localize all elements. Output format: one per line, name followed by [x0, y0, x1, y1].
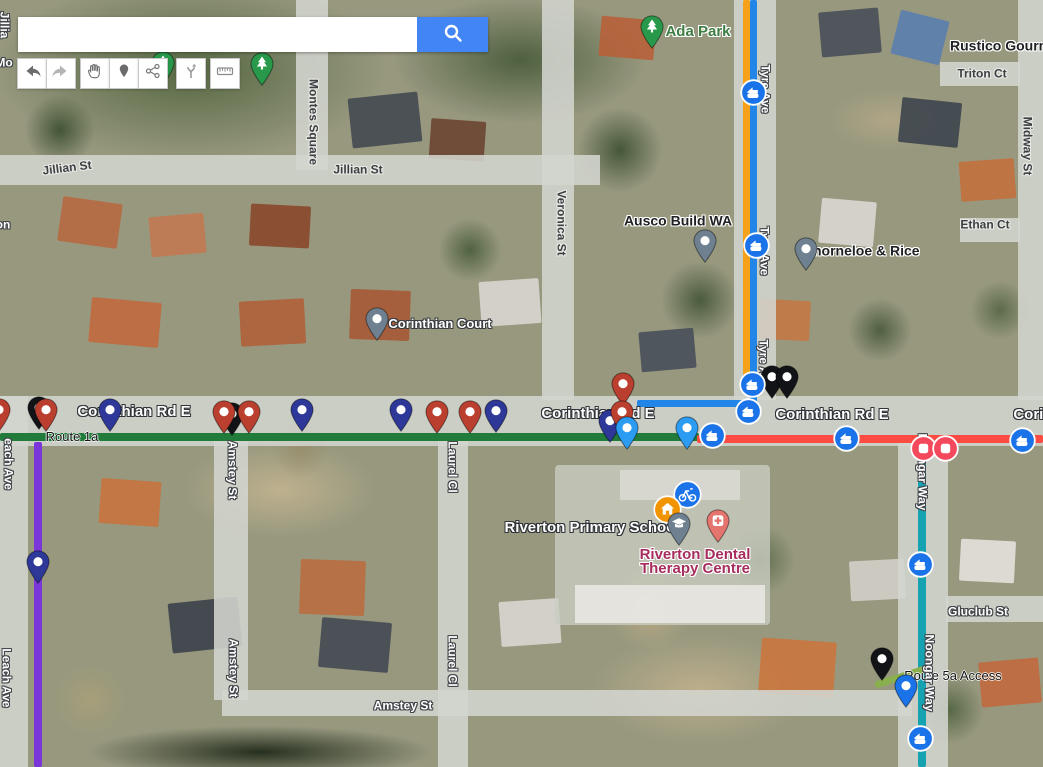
- stop-pin-navy[interactable]: [483, 399, 509, 433]
- directions-fork-button[interactable]: [176, 58, 206, 89]
- stop-pin-navy[interactable]: [25, 550, 51, 584]
- station-stop-icon[interactable]: [932, 435, 959, 462]
- search-bar: [18, 17, 488, 52]
- bus-stop-icon[interactable]: [739, 371, 766, 398]
- stop-pin-red[interactable]: [457, 400, 483, 434]
- ada-park-pin[interactable]: [639, 15, 665, 49]
- share-network-icon: [143, 61, 163, 86]
- route-orange-tyre-ave[interactable]: [743, 0, 750, 390]
- park-pin[interactable]: [249, 52, 275, 86]
- stop-pin-black[interactable]: [774, 365, 800, 399]
- bus-stop-icon[interactable]: [833, 425, 860, 452]
- back-button[interactable]: [17, 58, 47, 89]
- forward-arrow-icon: [51, 61, 71, 86]
- bus-stop-icon[interactable]: [907, 725, 934, 752]
- bus-stop-icon[interactable]: [907, 551, 934, 578]
- measure-button[interactable]: [210, 58, 240, 89]
- stop-pin-navy[interactable]: [97, 398, 123, 432]
- pan-tool-button[interactable]: [80, 58, 110, 89]
- search-button[interactable]: [417, 17, 488, 52]
- bus-stop-icon[interactable]: [735, 398, 762, 425]
- bus-stop-icon[interactable]: [743, 232, 770, 259]
- thorneloe-rice-pin[interactable]: [793, 237, 819, 271]
- stop-pin-blue[interactable]: [893, 674, 919, 708]
- dental-pin[interactable]: [705, 509, 731, 543]
- stop-pin-navy[interactable]: [289, 398, 315, 432]
- route-teal-noongar-way[interactable]: [918, 445, 926, 767]
- ausco-build-wa-pin[interactable]: [692, 229, 718, 263]
- share-button[interactable]: [138, 58, 168, 89]
- stop-pin-red[interactable]: [0, 398, 12, 432]
- forward-button[interactable]: [46, 58, 76, 89]
- bus-stop-icon[interactable]: [699, 422, 726, 449]
- map-canvas[interactable]: Jillian StJillian StMontes SquareVeronic…: [0, 0, 1043, 767]
- search-input[interactable]: [18, 17, 417, 52]
- marker-icon: [114, 61, 134, 86]
- ruler-icon: [215, 61, 235, 86]
- map-toolbar: [17, 58, 239, 89]
- corinthian-court-pin[interactable]: [364, 307, 390, 341]
- bus-stop-icon[interactable]: [740, 79, 767, 106]
- route-red-corinthian[interactable]: [697, 435, 1043, 443]
- stop-pin-navy[interactable]: [388, 398, 414, 432]
- stop-pin-skyblue[interactable]: [674, 416, 700, 450]
- school-pin[interactable]: [666, 512, 692, 546]
- route-blue-tyre-ave[interactable]: [750, 0, 757, 412]
- stop-pin-red[interactable]: [424, 400, 450, 434]
- search-icon: [442, 22, 464, 47]
- hand-icon: [85, 61, 105, 86]
- back-arrow-icon: [22, 61, 42, 86]
- route-purple-leach-ave[interactable]: [34, 442, 42, 767]
- add-marker-button[interactable]: [109, 58, 139, 89]
- stop-pin-black[interactable]: [869, 647, 895, 681]
- stop-pin-red[interactable]: [33, 398, 59, 432]
- fork-arrow-icon: [181, 61, 201, 86]
- bus-stop-icon[interactable]: [1009, 427, 1036, 454]
- stop-pin-red[interactable]: [211, 400, 237, 434]
- route-1a-green[interactable]: [0, 433, 699, 441]
- stop-pin-red[interactable]: [236, 400, 262, 434]
- stop-pin-skyblue[interactable]: [614, 416, 640, 450]
